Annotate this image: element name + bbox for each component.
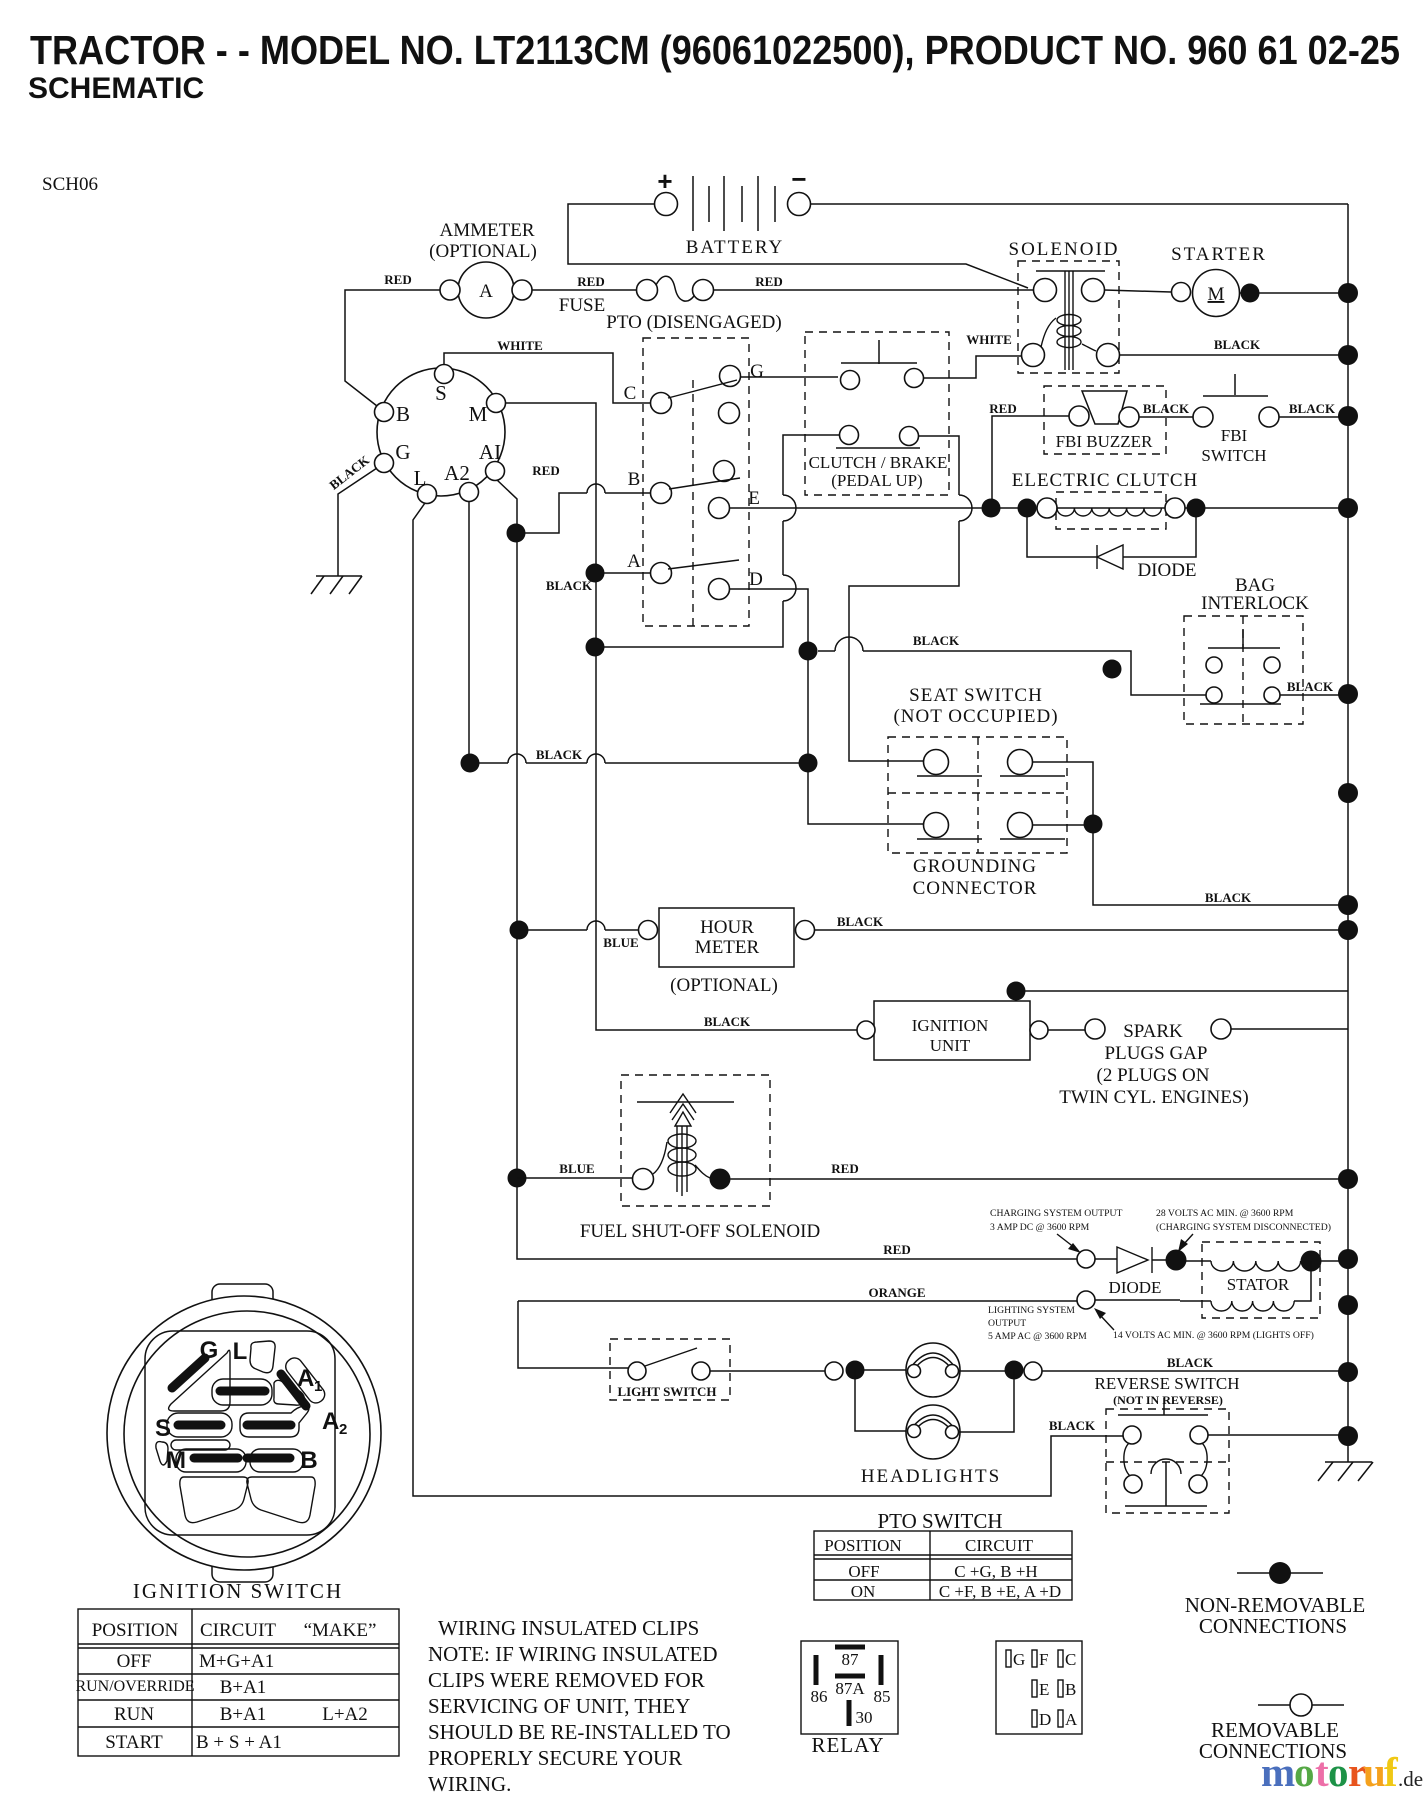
- svg-text:87: 87: [842, 1650, 860, 1669]
- svg-text:BLACK: BLACK: [536, 747, 583, 762]
- svg-text:2: 2: [339, 1421, 347, 1438]
- svg-text:WHITE: WHITE: [966, 332, 1012, 347]
- svg-text:BLACK: BLACK: [1049, 1418, 1096, 1433]
- svg-text:C: C: [1065, 1650, 1076, 1669]
- svg-text:t: t: [1315, 1749, 1329, 1795]
- svg-text:+: +: [657, 166, 672, 196]
- svg-text:RED: RED: [384, 272, 411, 287]
- svg-text:FBI: FBI: [1221, 426, 1248, 445]
- svg-text:u: u: [1363, 1749, 1386, 1795]
- svg-text:B+A1: B+A1: [220, 1677, 267, 1698]
- svg-text:BLACK: BLACK: [1143, 401, 1190, 416]
- svg-text:PTO (DISENGAGED): PTO (DISENGAGED): [606, 312, 781, 333]
- svg-text:PROPERLY SECURE YOUR: PROPERLY SECURE YOUR: [428, 1746, 682, 1770]
- svg-text:RED: RED: [883, 1242, 910, 1257]
- svg-text:m: m: [1261, 1749, 1295, 1795]
- svg-text:LIGHTING SYSTEM: LIGHTING SYSTEM: [988, 1305, 1075, 1316]
- svg-text:ELECTRIC CLUTCH: ELECTRIC CLUTCH: [1012, 470, 1199, 491]
- svg-text:AMMETER: AMMETER: [440, 220, 535, 241]
- svg-text:BATTERY: BATTERY: [686, 237, 784, 258]
- svg-text:BLACK: BLACK: [913, 633, 960, 648]
- svg-text:RUN: RUN: [114, 1704, 154, 1725]
- svg-text:IGNITION: IGNITION: [912, 1016, 988, 1035]
- svg-text:CIRCUIT: CIRCUIT: [200, 1620, 276, 1641]
- svg-text:G: G: [395, 440, 410, 464]
- svg-text:WIRING.: WIRING.: [428, 1772, 511, 1796]
- svg-text:C: C: [624, 383, 637, 404]
- svg-text:CIRCUIT: CIRCUIT: [965, 1536, 1034, 1555]
- svg-text:CLIPS WERE REMOVED FOR: CLIPS WERE REMOVED FOR: [428, 1668, 705, 1692]
- svg-text:A: A: [322, 1408, 339, 1435]
- svg-text:POSITION: POSITION: [824, 1536, 901, 1555]
- svg-text:BLUE: BLUE: [603, 935, 638, 950]
- svg-text:PLUGS GAP: PLUGS GAP: [1105, 1043, 1208, 1064]
- svg-text:OFF: OFF: [848, 1562, 879, 1581]
- svg-text:DIODE: DIODE: [1137, 560, 1196, 581]
- svg-text:RED: RED: [989, 401, 1016, 416]
- svg-text:REVERSE SWITCH: REVERSE SWITCH: [1095, 1374, 1240, 1393]
- svg-text:BLACK: BLACK: [1167, 1355, 1214, 1370]
- svg-text:CONNECTIONS: CONNECTIONS: [1199, 1614, 1347, 1638]
- svg-text:START: START: [105, 1732, 163, 1753]
- svg-text:METER: METER: [695, 937, 760, 958]
- svg-text:“MAKE”: “MAKE”: [304, 1620, 377, 1641]
- svg-text:SOLENOID: SOLENOID: [1009, 239, 1120, 260]
- svg-text:GROUNDING: GROUNDING: [913, 856, 1037, 877]
- svg-text:F: F: [1039, 1650, 1048, 1669]
- svg-text:M: M: [469, 402, 488, 426]
- svg-text:A: A: [627, 551, 641, 572]
- svg-text:3 AMP DC @ 3600 RPM: 3 AMP DC @ 3600 RPM: [990, 1222, 1090, 1233]
- svg-text:IGNITION SWITCH: IGNITION SWITCH: [133, 1579, 343, 1603]
- svg-text:85: 85: [874, 1687, 891, 1706]
- svg-text:14 VOLTS AC MIN. @ 3600 RPM (L: 14 VOLTS AC MIN. @ 3600 RPM (LIGHTS OFF): [1113, 1330, 1314, 1341]
- svg-text:5 AMP AC @ 3600 RPM: 5 AMP AC @ 3600 RPM: [988, 1331, 1087, 1342]
- svg-text:A2: A2: [444, 461, 470, 485]
- svg-text:WHITE: WHITE: [497, 338, 543, 353]
- svg-text:BLACK: BLACK: [1287, 679, 1334, 694]
- svg-text:RED: RED: [831, 1161, 858, 1176]
- svg-text:(OPTIONAL): (OPTIONAL): [429, 241, 537, 262]
- svg-text:30: 30: [856, 1708, 873, 1727]
- svg-text:87A: 87A: [835, 1679, 865, 1698]
- svg-text:B: B: [628, 469, 641, 490]
- svg-text:f: f: [1384, 1749, 1399, 1795]
- svg-text:86: 86: [811, 1687, 828, 1706]
- svg-text:L+A2: L+A2: [322, 1704, 368, 1725]
- svg-text:(2 PLUGS ON: (2 PLUGS ON: [1097, 1065, 1210, 1086]
- svg-text:INTERLOCK: INTERLOCK: [1201, 593, 1309, 614]
- svg-text:HEADLIGHTS: HEADLIGHTS: [861, 1466, 1001, 1487]
- svg-text:ON: ON: [851, 1582, 876, 1601]
- svg-text:FBI BUZZER: FBI BUZZER: [1056, 432, 1153, 451]
- svg-text:B: B: [1065, 1680, 1076, 1699]
- svg-text:D: D: [1039, 1710, 1051, 1729]
- svg-text:SPARK: SPARK: [1123, 1021, 1183, 1042]
- svg-text:BLACK: BLACK: [1289, 401, 1336, 416]
- svg-text:STATOR: STATOR: [1227, 1275, 1290, 1294]
- svg-text:CHARGING SYSTEM OUTPUT: CHARGING SYSTEM OUTPUT: [990, 1208, 1122, 1219]
- svg-text:BLACK: BLACK: [1205, 890, 1252, 905]
- svg-text:SCHEMATIC: SCHEMATIC: [28, 72, 204, 105]
- svg-text:UNIT: UNIT: [930, 1036, 971, 1055]
- svg-text:POSITION: POSITION: [92, 1620, 179, 1641]
- svg-text:BLUE: BLUE: [559, 1161, 594, 1176]
- svg-text:WIRING INSULATED CLIPS: WIRING INSULATED CLIPS: [438, 1616, 699, 1640]
- svg-text:(OPTIONAL): (OPTIONAL): [670, 975, 778, 996]
- svg-text:PTO SWITCH: PTO SWITCH: [877, 1509, 1002, 1533]
- svg-text:(NOT IN REVERSE): (NOT IN REVERSE): [1113, 1393, 1223, 1407]
- svg-text:SWITCH: SWITCH: [1201, 446, 1266, 465]
- svg-text:OFF: OFF: [117, 1651, 152, 1672]
- svg-text:G: G: [1013, 1650, 1025, 1669]
- svg-text:E: E: [748, 488, 760, 509]
- svg-text:A: A: [479, 281, 493, 302]
- svg-text:−: −: [791, 164, 806, 194]
- svg-text:TRACTOR - - MODEL NO. LT2113CM: TRACTOR - - MODEL NO. LT2113CM (96061022…: [30, 27, 1400, 73]
- svg-text:STARTER: STARTER: [1171, 244, 1267, 265]
- svg-text:CLUTCH / BRAKE: CLUTCH / BRAKE: [809, 453, 948, 472]
- svg-text:B: B: [396, 402, 410, 426]
- svg-text:ORANGE: ORANGE: [868, 1285, 925, 1300]
- svg-text:M: M: [1208, 284, 1225, 305]
- svg-text:RUN/OVERRIDE: RUN/OVERRIDE: [75, 1678, 194, 1695]
- svg-text:BLACK: BLACK: [546, 578, 593, 593]
- svg-text:C +G, B +H: C +G, B +H: [954, 1562, 1037, 1581]
- svg-text:L: L: [414, 466, 427, 490]
- svg-text:RELAY: RELAY: [811, 1733, 884, 1757]
- svg-text:L: L: [233, 1338, 248, 1365]
- svg-text:28 VOLTS AC MIN. @ 3600 RPM: 28 VOLTS AC MIN. @ 3600 RPM: [1156, 1208, 1294, 1219]
- svg-text:AI: AI: [479, 440, 501, 464]
- svg-text:DIODE: DIODE: [1109, 1278, 1162, 1297]
- svg-text:FUSE: FUSE: [559, 295, 605, 316]
- svg-text:C +F, B +E, A +D: C +F, B +E, A +D: [939, 1582, 1061, 1601]
- svg-text:TWIN CYL. ENGINES): TWIN CYL. ENGINES): [1059, 1087, 1248, 1108]
- svg-text:HOUR: HOUR: [700, 917, 754, 938]
- svg-text:SCH06: SCH06: [42, 174, 98, 195]
- svg-text:D: D: [749, 569, 763, 590]
- svg-text:RED: RED: [577, 274, 604, 289]
- svg-text:(CHARGING SYSTEM DISCONNECTED): (CHARGING SYSTEM DISCONNECTED): [1156, 1222, 1331, 1233]
- svg-text:BLACK: BLACK: [837, 914, 884, 929]
- svg-text:CONNECTOR: CONNECTOR: [913, 878, 1038, 899]
- svg-text:(PEDAL UP): (PEDAL UP): [831, 471, 922, 490]
- svg-text:o: o: [1294, 1749, 1315, 1795]
- svg-text:LIGHT SWITCH: LIGHT SWITCH: [617, 1384, 716, 1399]
- svg-text:A: A: [1065, 1710, 1078, 1729]
- svg-text:SHOULD BE RE-INSTALLED TO: SHOULD BE RE-INSTALLED TO: [428, 1720, 731, 1744]
- svg-text:RED: RED: [532, 463, 559, 478]
- svg-text:o: o: [1328, 1749, 1349, 1795]
- svg-text:NOTE: IF WIRING INSULATED: NOTE: IF WIRING INSULATED: [428, 1642, 718, 1666]
- svg-text:B+A1: B+A1: [220, 1704, 267, 1725]
- svg-text:M+G+A1: M+G+A1: [199, 1651, 274, 1672]
- svg-text:BLACK: BLACK: [704, 1014, 751, 1029]
- svg-text:G: G: [750, 361, 764, 382]
- svg-text:BLACK: BLACK: [1214, 337, 1261, 352]
- svg-text:OUTPUT: OUTPUT: [988, 1318, 1026, 1329]
- svg-text:RED: RED: [755, 274, 782, 289]
- svg-text:.de: .de: [1398, 1767, 1423, 1791]
- svg-text:S: S: [435, 381, 447, 405]
- svg-text:SERVICING OF UNIT, THEY: SERVICING OF UNIT, THEY: [428, 1694, 690, 1718]
- svg-text:FUEL SHUT-OFF SOLENOID: FUEL SHUT-OFF SOLENOID: [580, 1221, 820, 1242]
- svg-text:E: E: [1039, 1680, 1049, 1699]
- svg-text:(NOT OCCUPIED): (NOT OCCUPIED): [893, 706, 1058, 727]
- svg-text:SEAT SWITCH: SEAT SWITCH: [909, 685, 1043, 706]
- svg-text:B + S + A1: B + S + A1: [196, 1732, 282, 1753]
